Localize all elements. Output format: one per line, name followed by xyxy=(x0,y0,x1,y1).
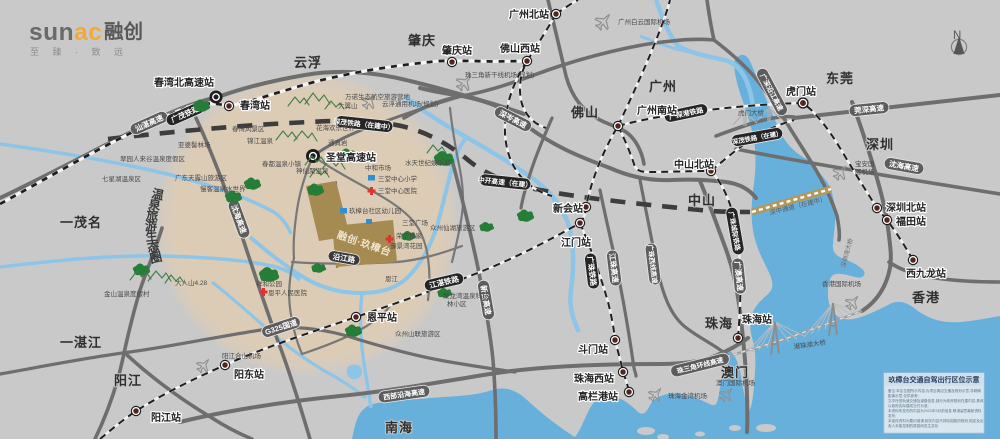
svg-text:七星湖温泉区: 七星湖温泉区 xyxy=(102,174,142,183)
svg-text:备注:本区位图所示内容,为项目周边交通及规划示意,非精确: 备注:本区位图所示内容,为项目周边交通及规划示意,非精确 xyxy=(888,388,981,393)
svg-text:金山温泉度假村: 金山温泉度假村 xyxy=(104,289,150,298)
svg-text:阳江站: 阳江站 xyxy=(151,411,181,424)
svg-text:发布;: 发布; xyxy=(888,413,896,418)
svg-text:云浮通用机场(规划): 云浮通用机场(规划) xyxy=(382,99,438,108)
svg-text:众州山联旅游区: 众州山联旅游区 xyxy=(395,329,441,338)
svg-text:广州白云国际机场: 广州白云国际机场 xyxy=(618,17,671,26)
svg-text:春湾风景区: 春湾风景区 xyxy=(232,124,265,133)
svg-text:祥和公园: 祥和公园 xyxy=(256,279,282,288)
svg-text:玖樟台交通自驾出行区位示意: 玖樟台交通自驾出行区位示意 xyxy=(889,375,980,384)
svg-text:sunac: sunac xyxy=(29,19,102,46)
svg-text:三堂广场: 三堂广场 xyxy=(402,218,429,227)
svg-text:春都温泉小镇: 春都温泉小镇 xyxy=(262,159,302,168)
svg-text:珠海西站: 珠海西站 xyxy=(574,372,614,385)
svg-text:恩平人民医院: 恩平人民医院 xyxy=(268,288,308,297)
svg-text:文中所述轨道交通及道路信息,部分为政府规划在建内容,具体: 文中所述轨道交通及道路信息,部分为政府规划在建内容,具体 xyxy=(888,398,984,403)
svg-text:本宣传资料为要约邀请,相关内容不排除因政府规划,规定及出: 本宣传资料为要约邀请,相关内容不排除因政府规划,规定及出 xyxy=(888,418,984,423)
svg-text:至臻·致远: 至臻·致远 xyxy=(30,46,137,57)
svg-text:翠园人来谷温泉度假区: 翠园人来谷温泉度假区 xyxy=(120,154,186,163)
svg-text:深圳: 深圳 xyxy=(866,137,894,152)
svg-text:福田站: 福田站 xyxy=(895,215,926,228)
svg-text:肇庆站: 肇庆站 xyxy=(441,44,472,57)
svg-text:以政府实际建成交付为准;: 以政府实际建成交付为准; xyxy=(888,403,929,408)
svg-text:珠海: 珠海 xyxy=(705,316,733,331)
svg-text:林小区: 林小区 xyxy=(447,299,467,308)
svg-text:广州南站: 广州南站 xyxy=(637,104,677,117)
svg-text:三堂中心小学: 三堂中心小学 xyxy=(378,174,418,183)
svg-text:神仙聚温泉: 神仙聚温泉 xyxy=(296,166,329,175)
svg-text:江门站: 江门站 xyxy=(561,236,591,249)
svg-text:通真岩: 通真岩 xyxy=(328,138,348,147)
svg-text:澳门国际机场: 澳门国际机场 xyxy=(716,378,756,387)
svg-text:玖樟台社区幼儿园: 玖樟台社区幼儿园 xyxy=(349,206,401,215)
svg-text:南海: 南海 xyxy=(385,420,413,435)
svg-text:佛山西站: 佛山西站 xyxy=(499,42,540,55)
svg-text:澳门: 澳门 xyxy=(721,365,749,380)
svg-text:广东天露山旅游区: 广东天露山旅游区 xyxy=(175,173,228,182)
svg-text:云浮: 云浮 xyxy=(294,55,322,70)
svg-text:恩江: 恩江 xyxy=(385,275,399,283)
svg-text:荣华世家: 荣华世家 xyxy=(396,231,423,240)
svg-text:一湛江: 一湛江 xyxy=(60,335,102,350)
svg-text:水天世纪娱乐城: 水天世纪娱乐城 xyxy=(405,158,451,167)
svg-text:阳江合山机场: 阳江合山机场 xyxy=(222,351,262,360)
svg-text:宝安国: 宝安国 xyxy=(855,159,875,168)
svg-text:肇庆: 肇庆 xyxy=(407,33,436,48)
svg-text:慢客温泉水世界: 慢客温泉水世界 xyxy=(200,184,246,193)
svg-text:御景湾花园: 御景湾花园 xyxy=(390,241,423,250)
svg-text:春湾北高速站: 春湾北高速站 xyxy=(154,76,214,89)
svg-text:本资料所发布的内容为2021年9月前信息,敬请留意最新资料: 本资料所发布的内容为2021年9月前信息,敬请留意最新资料 xyxy=(888,408,982,413)
svg-text:深圳北站: 深圳北站 xyxy=(886,201,926,214)
svg-text:春湾站: 春湾站 xyxy=(240,99,270,112)
svg-text:虎门大桥: 虎门大桥 xyxy=(738,108,765,117)
svg-text:际机场: 际机场 xyxy=(855,167,875,176)
svg-text:斗门站: 斗门站 xyxy=(578,343,608,356)
svg-text:圣堂高速站: 圣堂高速站 xyxy=(326,151,376,164)
svg-text:广州: 广州 xyxy=(649,79,677,94)
svg-text:高栏港站: 高栏港站 xyxy=(578,390,618,403)
svg-text:阳江: 阳江 xyxy=(114,373,142,388)
svg-text:聚龙湾温泉科技: 聚龙湾温泉科技 xyxy=(443,291,489,300)
svg-text:新会站: 新会站 xyxy=(553,202,583,215)
svg-text:中和市场: 中和市场 xyxy=(365,163,392,172)
svg-text:万诺生态航空旅游营地: 万诺生态航空旅游营地 xyxy=(345,92,411,101)
svg-text:西九龙站: 西九龙站 xyxy=(906,267,946,280)
svg-text:融创: 融创 xyxy=(104,20,143,43)
svg-text:珠海站: 珠海站 xyxy=(742,313,772,326)
svg-text:珠海金湾机场: 珠海金湾机场 xyxy=(668,391,708,400)
svg-text:三堂中心医院: 三堂中心医院 xyxy=(378,186,418,195)
svg-text:虎门站: 虎门站 xyxy=(786,85,816,98)
svg-text:大翼山: 大翼山 xyxy=(338,101,358,110)
svg-text:卖人未能控制的原因而发生变化.: 卖人未能控制的原因而发生变化. xyxy=(888,423,939,428)
svg-text:阳东站: 阳东站 xyxy=(234,368,264,381)
svg-text:香港国际机场: 香港国际机场 xyxy=(822,279,862,288)
svg-text:距离示意,仅供参考;: 距离示意,仅供参考; xyxy=(888,393,919,398)
svg-text:亚婆髻林场: 亚婆髻林场 xyxy=(178,140,211,149)
svg-text:一茂名: 一茂名 xyxy=(60,215,102,230)
svg-text:锦江温泉: 锦江温泉 xyxy=(247,136,274,145)
svg-text:恩平站: 恩平站 xyxy=(367,311,397,324)
svg-text:大人山4.28: 大人山4.28 xyxy=(175,278,208,287)
svg-text:珠三角新干线机场(规划): 珠三角新干线机场(规划) xyxy=(465,70,534,79)
svg-text:广州北站: 广州北站 xyxy=(509,8,549,21)
svg-text:花海欢乐世界: 花海欢乐世界 xyxy=(316,123,356,132)
svg-text:中山: 中山 xyxy=(688,193,716,208)
svg-text:香港: 香港 xyxy=(911,290,940,305)
svg-text:东莞: 东莞 xyxy=(826,71,854,86)
svg-text:众州仙湖旅游区: 众州仙湖旅游区 xyxy=(430,223,476,232)
svg-text:佛山: 佛山 xyxy=(570,105,599,120)
svg-text:中山北站: 中山北站 xyxy=(674,158,714,171)
